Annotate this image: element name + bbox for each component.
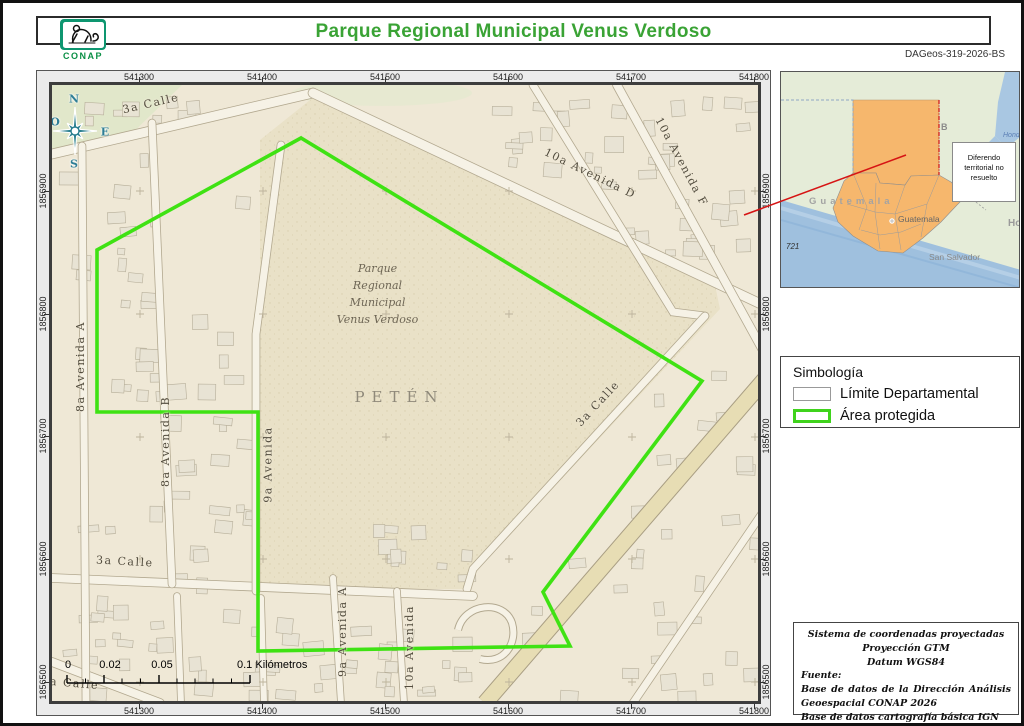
legend-title: Simbología <box>793 364 1007 380</box>
street-label: 8a Avenida B <box>159 396 172 487</box>
scale-label: 0.1 Kilómetros <box>237 659 307 671</box>
departmental-limit-swatch <box>793 387 831 401</box>
grid-tick <box>760 436 765 437</box>
grid-tick <box>631 77 632 82</box>
header-box: Parque Regional Municipal Venus Verdoso <box>36 16 991 45</box>
map-frame: 541300 541400 541500 541600 541700 54180… <box>36 70 771 716</box>
honduras-label-partial: Ho <box>1008 218 1020 229</box>
belize-label-partial: B <box>941 122 948 132</box>
peten-department <box>853 100 939 185</box>
grid-tick <box>754 704 755 709</box>
compass-n-label: N <box>69 93 79 106</box>
grid-tick <box>760 191 765 192</box>
scale-bar-ticks <box>65 673 325 685</box>
note-line: territorial no <box>964 163 1004 172</box>
scale-value: 0.1 <box>237 659 252 671</box>
blue-geo-label-partial: Hond <box>1003 132 1020 139</box>
grid-tick <box>631 704 632 709</box>
street-label: 8a Avenida A <box>74 321 87 412</box>
scale-unit: Kilómetros <box>255 659 307 671</box>
grid-tick <box>262 704 263 709</box>
crs-line: Datum WGS84 <box>801 656 1011 670</box>
legend-item: Área protegida <box>793 408 1007 424</box>
grid-tick <box>262 77 263 82</box>
capital-city-dot <box>890 219 894 223</box>
park-name-line: Municipal <box>350 296 406 309</box>
map-document-page: Parque Regional Municipal Venus Verdoso … <box>0 0 1024 726</box>
legend-item: Límite Departamental <box>793 386 1007 402</box>
grid-tick <box>44 191 49 192</box>
capital-label: Guatemala <box>898 214 940 224</box>
map-canvas: N E S O 3a Calle 10a Avenida F 10a Aveni… <box>49 82 761 704</box>
park-name-line: Venus Verdoso <box>337 313 418 326</box>
source-fuente-label: Fuente: <box>801 669 1011 683</box>
grid-tick <box>760 559 765 560</box>
source-box: Sistema de coordenadas proyectadas Proye… <box>793 622 1019 715</box>
san-salvador-label: San Salvador <box>929 252 980 262</box>
grid-tick <box>385 704 386 709</box>
grid-tick <box>760 314 765 315</box>
grid-tick <box>44 314 49 315</box>
crs-line: Sistema de coordenadas proyectadas <box>801 628 1011 642</box>
scale-label: 0.05 <box>151 659 172 671</box>
country-label: Guatemala <box>809 196 894 207</box>
park-name-label: Parque Regional Municipal Venus Verdoso <box>310 260 445 328</box>
grid-tick <box>754 77 755 82</box>
scale-bar: 0 0.02 0.05 0.1 Kilómetros <box>65 659 345 689</box>
conap-logo: CONAP <box>58 19 108 61</box>
source-line: Base de datos cartografía básica IGN 201… <box>801 711 1011 726</box>
grid-tick <box>139 704 140 709</box>
inset-locator-map: Guatemala Guatemala San Salvador Ho B Ho… <box>780 71 1020 288</box>
grid-tick <box>508 77 509 82</box>
conap-logo-frame <box>60 19 106 50</box>
grid-tick <box>44 559 49 560</box>
scale-label: 0 <box>65 659 71 671</box>
scale-label: 0.02 <box>99 659 120 671</box>
legend-label: Área protegida <box>840 408 935 424</box>
park-name-line: Regional <box>353 279 402 292</box>
compass-s-label: S <box>70 158 78 171</box>
grid-tick <box>44 436 49 437</box>
source-line: Base de datos de la Dirección Análisis G… <box>801 683 1011 711</box>
street-label: 9a Avenida <box>262 426 275 502</box>
legend: Simbología Límite Departamental Área pro… <box>780 356 1020 428</box>
note-line: resuelto <box>971 173 998 182</box>
conap-logo-text: CONAP <box>58 51 108 61</box>
grid-tick <box>139 77 140 82</box>
note-line: Diferendo <box>968 153 1001 162</box>
compass-e-label: E <box>101 126 109 139</box>
department-label: PETÉN <box>332 388 467 406</box>
compass-o-label: O <box>50 116 60 129</box>
grid-tick <box>44 682 49 683</box>
park-name-line: Parque <box>358 262 397 275</box>
grid-tick <box>508 704 509 709</box>
territorial-note: Diferendo territorial no resuelto <box>952 142 1016 202</box>
document-id: DAGeos-319-2026-BS <box>905 49 1005 60</box>
grid-tick <box>760 682 765 683</box>
route-number-label: 721 <box>786 242 799 251</box>
monkey-icon <box>63 22 104 48</box>
grid-tick <box>385 77 386 82</box>
protected-area-swatch <box>793 409 831 423</box>
street-label: 10a Avenida <box>403 605 416 690</box>
crs-line: Proyección GTM <box>801 642 1011 656</box>
legend-label: Límite Departamental <box>840 386 979 402</box>
page-title: Parque Regional Municipal Venus Verdoso <box>38 21 989 43</box>
